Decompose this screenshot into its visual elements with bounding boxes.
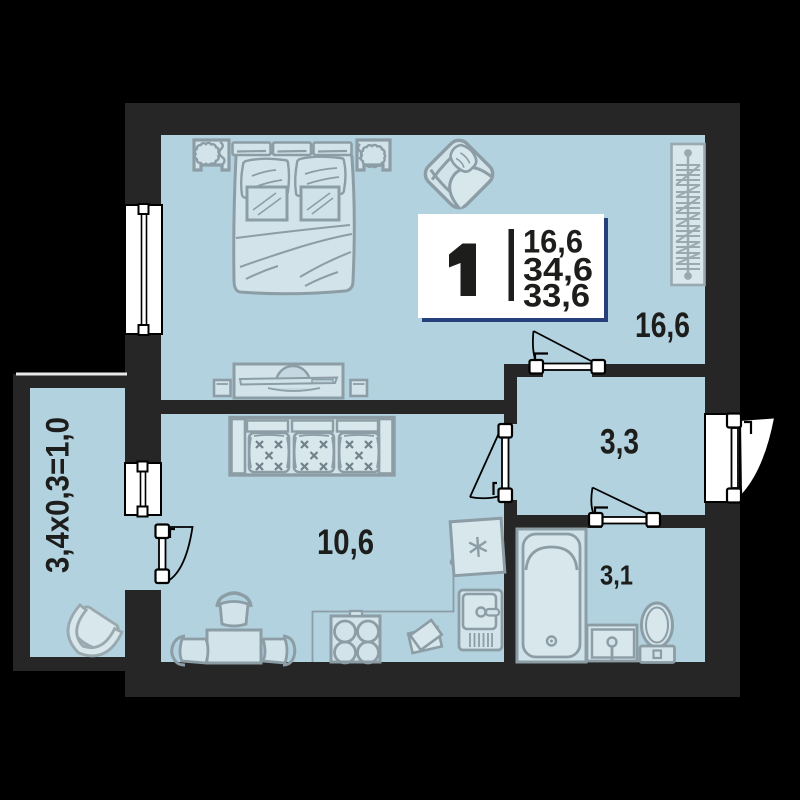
- svg-text:3,1: 3,1: [600, 560, 633, 591]
- svg-text:3,4x0,3=1,0: 3,4x0,3=1,0: [40, 417, 76, 573]
- svg-text:16,6: 16,6: [635, 306, 690, 345]
- svg-text:3,3: 3,3: [600, 423, 639, 462]
- svg-text:10,6: 10,6: [317, 523, 374, 562]
- svg-text:33,6: 33,6: [523, 278, 590, 314]
